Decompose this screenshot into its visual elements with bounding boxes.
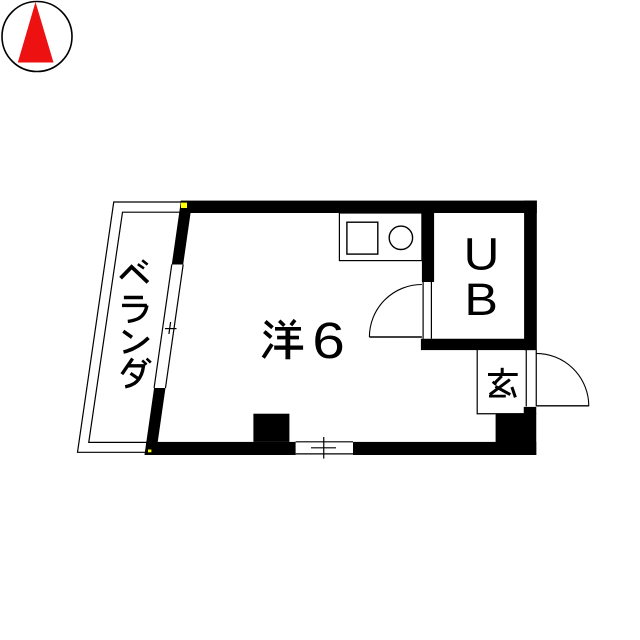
svg-text:6: 6 — [312, 312, 345, 370]
svg-text:B: B — [464, 275, 498, 325]
svg-text:U: U — [464, 230, 500, 280]
